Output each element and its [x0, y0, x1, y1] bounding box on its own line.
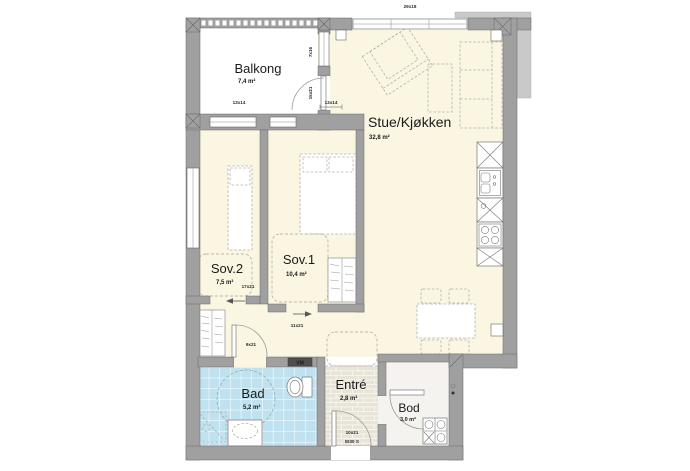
washing-machine-marker: VM — [288, 358, 312, 366]
wall-sov1-bottom — [268, 304, 286, 312]
dining-table — [417, 304, 475, 338]
room-area-stue: 32,8 m² — [369, 134, 390, 141]
wall-niche-bottom — [318, 304, 364, 312]
bed-single — [228, 166, 252, 250]
window-balcony-1 — [210, 117, 256, 127]
dim-top-window: 29x18 — [404, 4, 417, 9]
balcony-railing — [200, 18, 318, 28]
floor-plan: VM Balkong 7,4 m² Stue/Kjøkken 32,8 m² S… — [0, 0, 690, 471]
wardrobe-hall — [199, 310, 225, 356]
wall-bath-top — [198, 357, 234, 367]
room-name-sov2: Sov.2 — [211, 261, 243, 276]
dim-bad-door: 9x21 — [246, 342, 257, 347]
room-name-stue: Stue/Kjøkken — [368, 114, 451, 130]
wardrobe-sov1 — [328, 258, 356, 302]
wall-right — [503, 18, 517, 368]
wall-bedroom-divider — [260, 130, 268, 304]
floor-plan-drawing: VM Balkong 7,4 m² Stue/Kjøkken 32,8 m² S… — [0, 0, 690, 471]
dim-balcony-door: 13x14 — [325, 100, 338, 105]
dim-balcony-window: 13x14 — [233, 100, 246, 105]
wall-sov2-bottom — [186, 296, 210, 304]
room-name-sov1: Sov.1 — [283, 252, 315, 267]
window-top — [353, 19, 467, 29]
corner-column — [318, 18, 330, 30]
dim-sov2-door: 17x21 — [242, 284, 255, 289]
kitchen-units — [477, 142, 503, 266]
wall-balcony-sep — [318, 66, 330, 76]
post — [491, 30, 502, 41]
window-balcony-wall — [319, 32, 329, 66]
room-area-sov2: 7,5 m² — [216, 279, 233, 286]
wall-entry-bod-divider — [378, 357, 386, 396]
room-area-bad: 5,2 m² — [243, 404, 260, 411]
room-name-balkong: Balkong — [235, 61, 282, 76]
storage-appliance — [423, 418, 447, 444]
dim-hall-door: 11x21 — [291, 323, 304, 328]
wall-symbol — [452, 392, 455, 395]
room-name-bad: Bad — [241, 386, 264, 401]
wall-bath-entry-divider — [317, 357, 325, 446]
dim-wall-window: 7x16 — [308, 46, 313, 57]
window-balcony-2 — [270, 117, 296, 127]
room-area-sov1: 10,4 m² — [286, 271, 307, 278]
wall-sov2-bottom — [246, 296, 260, 304]
bed-double — [300, 154, 356, 234]
post — [336, 30, 346, 40]
wall-trim-top — [455, 12, 531, 18]
vanity-sink — [228, 420, 262, 446]
room-area-balkong: 7,4 m² — [238, 78, 255, 85]
dim-entry-door: 10x21 — [346, 430, 359, 435]
room-name-entre: Entré — [335, 377, 366, 392]
post — [491, 324, 503, 336]
washing-machine-label: VM — [296, 360, 304, 366]
corner-column — [186, 114, 200, 128]
cooktop — [477, 222, 503, 248]
dim-entry-door-rating: EI30 S — [345, 439, 359, 444]
wall-bod-right — [449, 354, 463, 460]
wall-sov1-right — [356, 130, 364, 312]
room-area-bod: 3,0 m² — [400, 416, 416, 423]
kitchen-sink — [477, 168, 503, 198]
window-sov2-left — [187, 168, 199, 248]
wall-bottom — [186, 446, 463, 460]
room-name-bod: Bod — [398, 401, 419, 415]
wall-bod-top — [378, 354, 449, 362]
wall-entry-bod-divider — [378, 424, 386, 446]
toilet — [287, 377, 312, 397]
room-area-entre: 2,8 m² — [340, 395, 357, 402]
corner-column — [186, 18, 200, 32]
dim-wall-door: 15x21 — [308, 86, 313, 99]
